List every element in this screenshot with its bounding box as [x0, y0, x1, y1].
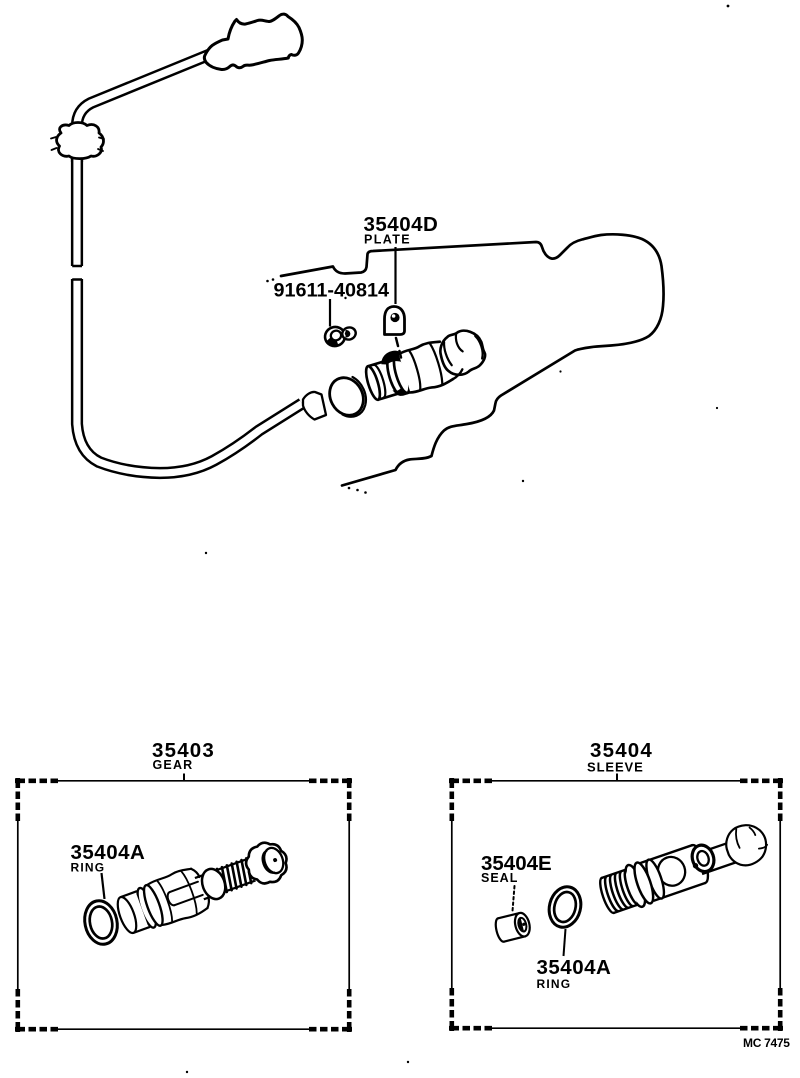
svg-text:SEAL: SEAL: [481, 871, 518, 885]
svg-text:MC 7475: MC 7475: [743, 1036, 790, 1050]
svg-text:GEAR: GEAR: [153, 758, 194, 772]
svg-text:35404A: 35404A: [537, 956, 612, 979]
svg-text:RING: RING: [71, 861, 106, 875]
svg-text:SLEEVE: SLEEVE: [587, 760, 644, 775]
svg-text:91611-40814: 91611-40814: [274, 280, 390, 302]
svg-text:RING: RING: [537, 977, 572, 991]
svg-text:PLATE: PLATE: [364, 233, 411, 247]
